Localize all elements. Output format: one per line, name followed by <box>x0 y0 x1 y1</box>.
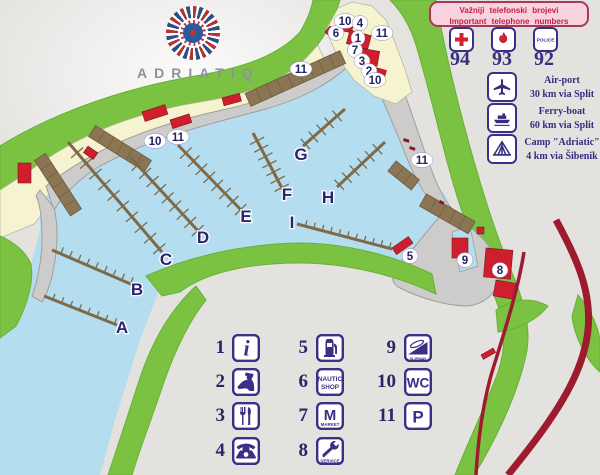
police-number: 92 <box>527 48 561 71</box>
market-caption: MARKET <box>321 422 340 427</box>
camp-distance: 4 km via Šibenik <box>514 150 600 164</box>
ferry-title: Ferry-boat <box>514 105 600 119</box>
marina-map-page: A B C D E F G H I 10 11 11 6 10 4 1 11 7… <box>0 0 600 475</box>
airport-info: Air-port 30 km via Split <box>514 74 600 102</box>
camp-info: Camp "Adriatic" 4 km via Šibenik <box>514 136 600 164</box>
nautic-label: NAUTIC <box>318 376 343 383</box>
shop-label: SHOP <box>321 384 340 391</box>
telephone-icon <box>232 437 260 465</box>
pier-label-f: F <box>282 185 292 204</box>
marker-9: 9 <box>462 255 468 267</box>
nautic-shop-icon: NAUTIC SHOP <box>316 368 344 396</box>
pier-label-e: E <box>240 207 251 226</box>
banner-line-hr: Važniji telefonski brojevi <box>431 5 587 16</box>
parking-icon: P <box>404 402 432 430</box>
pier-label-h: H <box>322 188 334 207</box>
marker-8: 8 <box>497 265 504 277</box>
service-wrench-icon: SERVICE <box>316 437 344 465</box>
telephone-numbers-banner: Važniji telefonski brojevi Important tel… <box>429 1 589 27</box>
marker-11: 11 <box>376 28 389 40</box>
marker-11: 11 <box>172 132 185 144</box>
ferry-info: Ferry-boat 60 km via Split <box>514 105 600 133</box>
ferry-distance: 60 km via Split <box>514 119 600 133</box>
airport-distance: 30 km via Split <box>514 88 600 102</box>
information-icon: i <box>232 334 260 362</box>
marker-11: 11 <box>416 155 429 167</box>
fuel-pump-icon <box>316 334 344 362</box>
adriatiq-logo: ADRIATIQ <box>130 6 255 81</box>
pier-label-d: D <box>197 228 209 247</box>
wc-label: WC <box>407 376 430 391</box>
legend-num-3: 3 <box>193 405 225 427</box>
service-caption: SERVICE <box>320 459 339 464</box>
banner-line-en: Important telephone numbers <box>431 16 587 27</box>
brand-name: ADRIATIQ <box>130 65 255 81</box>
compass-rose-icon <box>166 6 220 60</box>
legend-num-10: 10 <box>356 371 396 393</box>
parking-label: P <box>412 408 423 427</box>
legend-num-5: 5 <box>276 337 308 359</box>
legend-num-4: 4 <box>193 440 225 462</box>
pier-label-b: B <box>131 280 143 299</box>
fire-number: 93 <box>485 48 519 71</box>
wc-icon: WC <box>404 368 432 396</box>
pier-label-g: G <box>294 145 307 164</box>
marker-11: 11 <box>295 64 308 76</box>
restaurant-icon <box>232 402 260 430</box>
marker-10: 10 <box>339 16 352 28</box>
marker-10: 10 <box>369 75 382 87</box>
camp-tent-icon <box>487 134 517 164</box>
airplane-icon <box>487 72 517 102</box>
slipway-icon: SLIPWAY <box>404 334 432 362</box>
pier-label-a: A <box>116 318 128 337</box>
first-aid-number: 94 <box>443 48 477 71</box>
legend-num-8: 8 <box>276 440 308 462</box>
slipway-caption: SLIPWAY <box>410 357 427 361</box>
police-label: POLICE <box>537 38 555 44</box>
legend-num-11: 11 <box>356 405 396 427</box>
marker-6: 6 <box>333 28 339 40</box>
legend-num-7: 7 <box>276 405 308 427</box>
info-glyph: i <box>243 336 250 361</box>
legend-num-9: 9 <box>356 337 396 359</box>
ferry-boat-icon <box>487 103 517 133</box>
airport-title: Air-port <box>514 74 600 88</box>
legend-num-6: 6 <box>276 371 308 393</box>
marker-5: 5 <box>407 251 414 263</box>
customs-officer-icon <box>232 368 260 396</box>
market-icon: M MARKET <box>316 402 344 430</box>
marker-4: 4 <box>357 18 364 30</box>
marker-10: 10 <box>149 136 162 148</box>
camp-title: Camp "Adriatic" <box>514 136 600 150</box>
legend-num-2: 2 <box>193 371 225 393</box>
pier-label-i: I <box>290 213 295 232</box>
legend-num-1: 1 <box>193 337 225 359</box>
pier-label-c: C <box>160 250 172 269</box>
